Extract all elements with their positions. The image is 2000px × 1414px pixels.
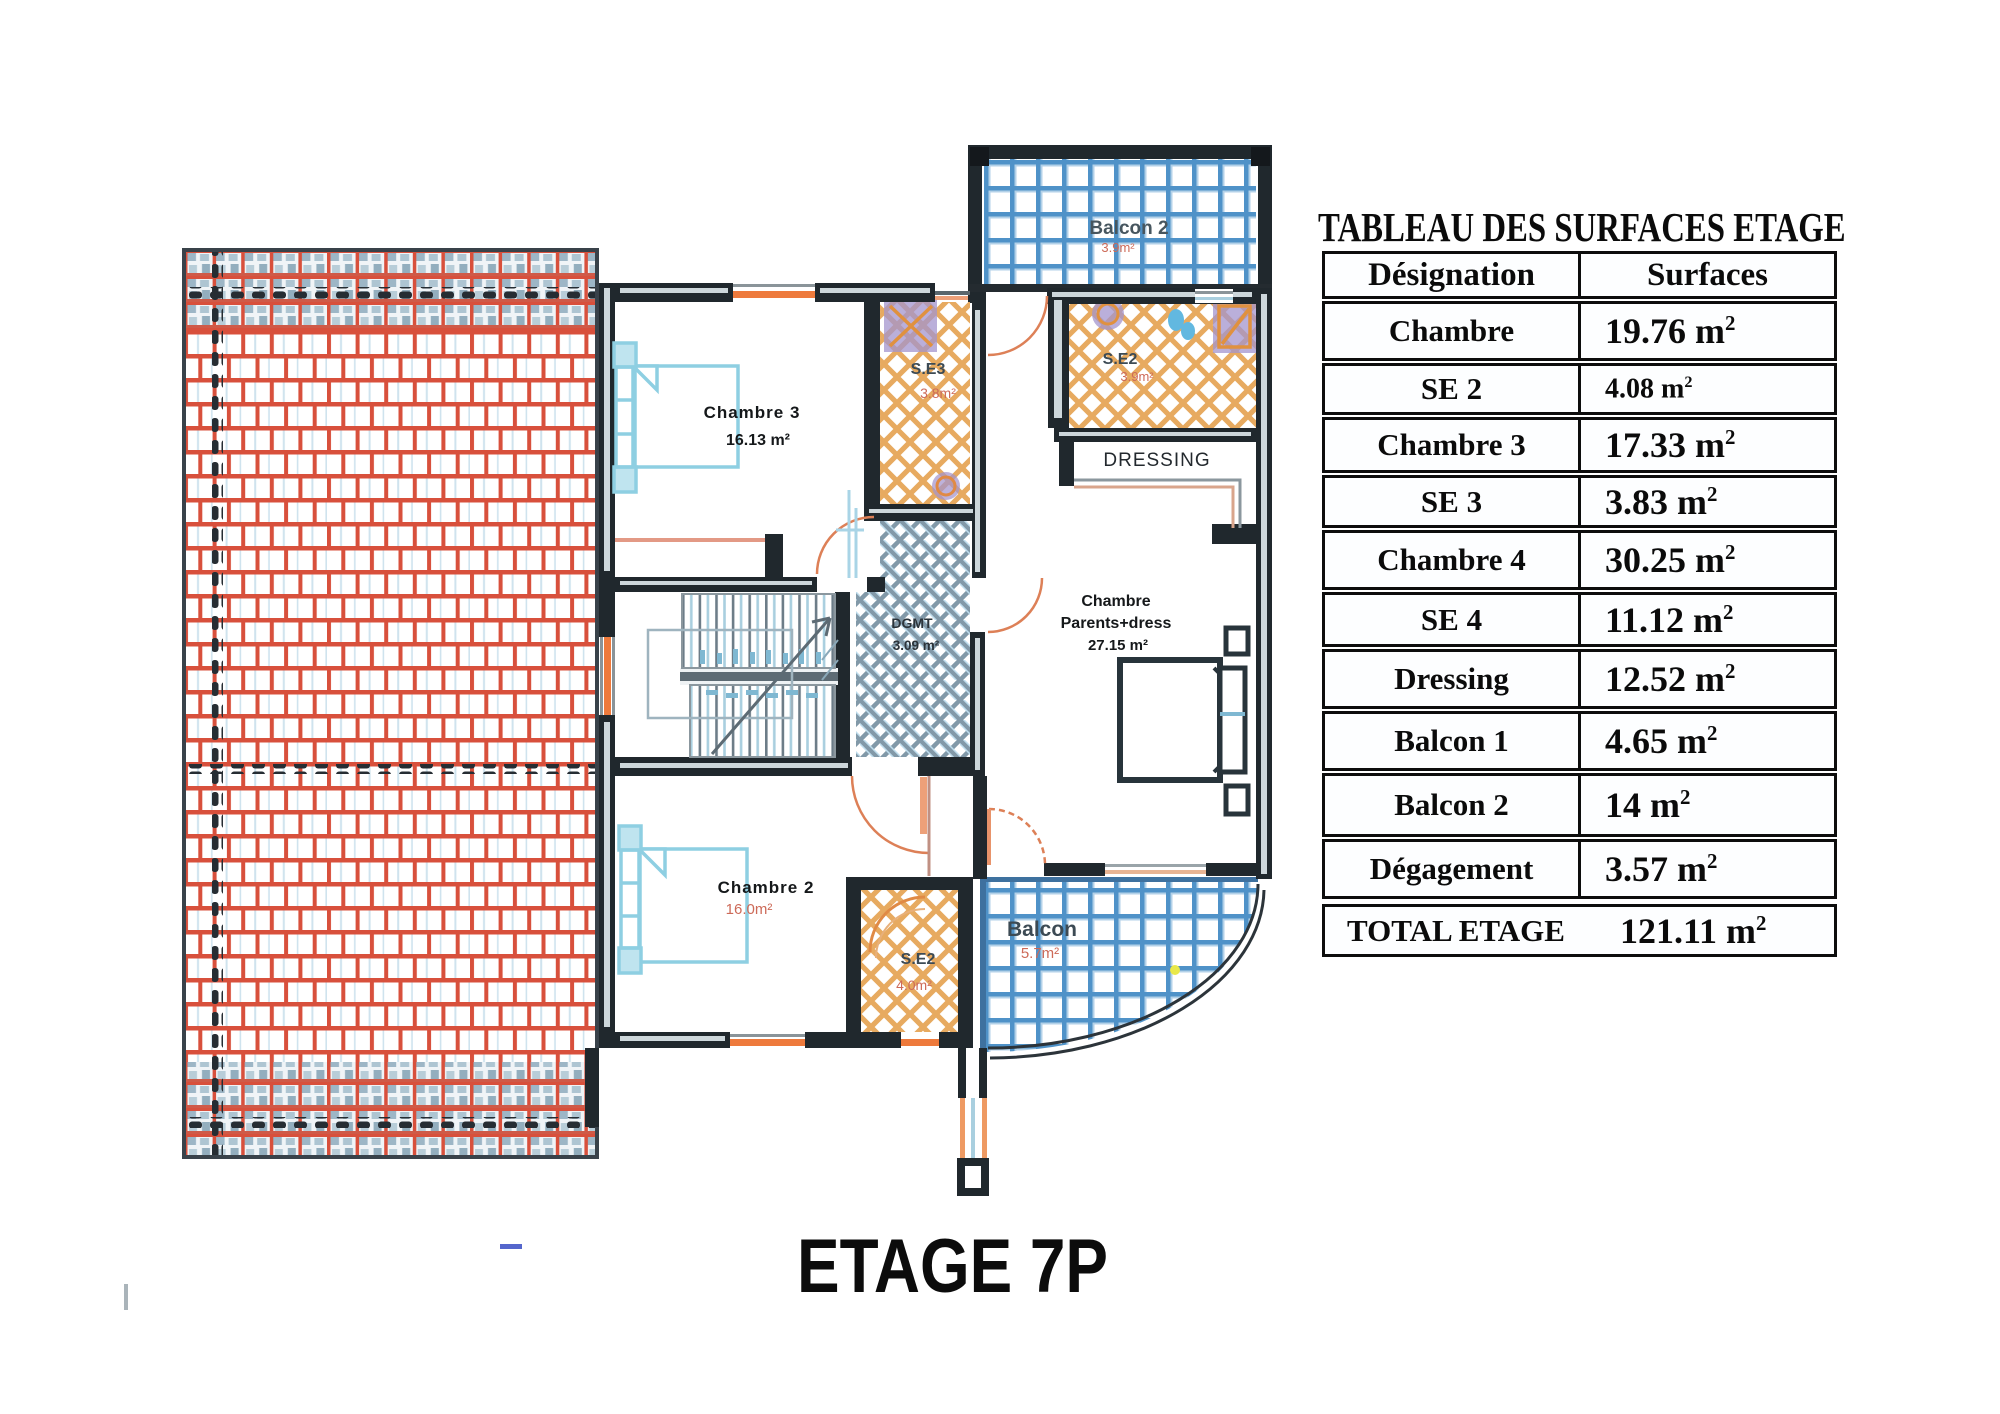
svg-text:16.13 m²: 16.13 m² [726,432,790,449]
svg-text:Balcon 2: Balcon 2 [1089,218,1168,239]
svg-text:Balcon: Balcon [1007,918,1077,941]
svg-text:DGMT: DGMT [891,615,933,631]
svg-text:16.0m²: 16.0m² [726,901,773,918]
svg-text:Chambre 2: Chambre 2 [718,878,815,897]
svg-text:Chambre 3: Chambre 3 [704,403,801,422]
svg-text:3.9m²: 3.9m² [1101,240,1135,255]
svg-text:Chambre: Chambre [1081,593,1150,610]
svg-text:5.7m²: 5.7m² [1021,945,1059,962]
svg-text:3.9m²: 3.9m² [1120,369,1154,384]
svg-text:Parents+dress: Parents+dress [1061,615,1172,632]
svg-text:S.E2: S.E2 [1103,351,1138,368]
svg-text:DRESSING: DRESSING [1103,450,1210,471]
svg-text:S.E2: S.E2 [901,951,936,968]
svg-text:27.15 m²: 27.15 m² [1088,637,1148,654]
svg-text:3.8m²: 3.8m² [920,385,956,401]
svg-text:S.E3: S.E3 [911,361,946,378]
svg-text:3.09 m²: 3.09 m² [893,638,940,653]
svg-text:4.0m²: 4.0m² [896,977,932,993]
